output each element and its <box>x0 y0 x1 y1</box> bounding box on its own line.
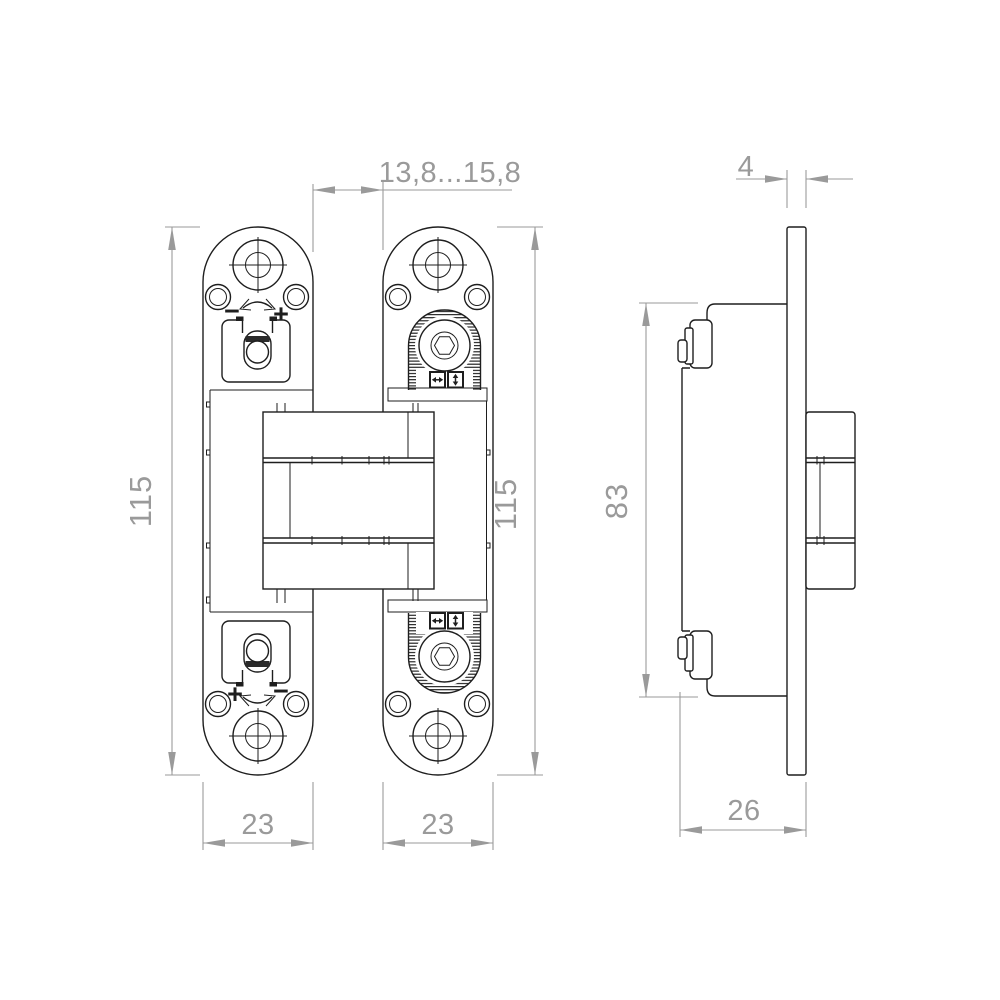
dimension-height-right: 115 <box>488 227 543 775</box>
top-adjuster <box>222 316 290 382</box>
dimension-height-left: 115 <box>123 227 200 775</box>
adjust-screw <box>247 640 269 662</box>
side-body <box>678 304 787 696</box>
horizontal-adjust-icon <box>430 372 445 388</box>
dimension-plate-thickness: 4 <box>736 151 853 208</box>
adjust-minus-sign: − <box>273 676 289 706</box>
adjust-screw <box>247 341 269 363</box>
front-view: − + <box>203 227 493 775</box>
dim-width-left-label: 23 <box>241 809 274 841</box>
side-knuckle <box>806 412 855 589</box>
dim-gap-label: 13,8...15,8 <box>379 157 522 189</box>
vertical-adjust-icon <box>448 613 463 629</box>
dim-depth-label: 26 <box>727 795 760 827</box>
top-cam-adjuster <box>409 310 481 390</box>
side-plate <box>787 227 806 775</box>
horizontal-adjust-icon <box>430 613 445 629</box>
adjust-plus-sign: + <box>227 679 243 709</box>
side-view <box>678 227 855 775</box>
bottom-cam-adjuster <box>409 612 481 693</box>
vertical-adjust-icon <box>448 372 463 388</box>
hex-screw <box>419 631 470 682</box>
hinge-links <box>263 412 434 589</box>
dim-body-height-label: 83 <box>599 483 634 519</box>
hinge-technical-drawing: 13,8...15,8 4 115 115 83 <box>0 0 1000 1000</box>
drawing-canvas: 13,8...15,8 4 115 115 83 <box>0 0 1000 1000</box>
dim-height-left-label: 115 <box>123 475 158 527</box>
dim-thickness-label: 4 <box>738 151 755 183</box>
dimension-plate-width-right: 23 <box>383 782 493 850</box>
hex-screw <box>419 320 470 371</box>
dim-width-right-label: 23 <box>421 809 454 841</box>
dimension-plate-width-left: 23 <box>203 782 313 850</box>
